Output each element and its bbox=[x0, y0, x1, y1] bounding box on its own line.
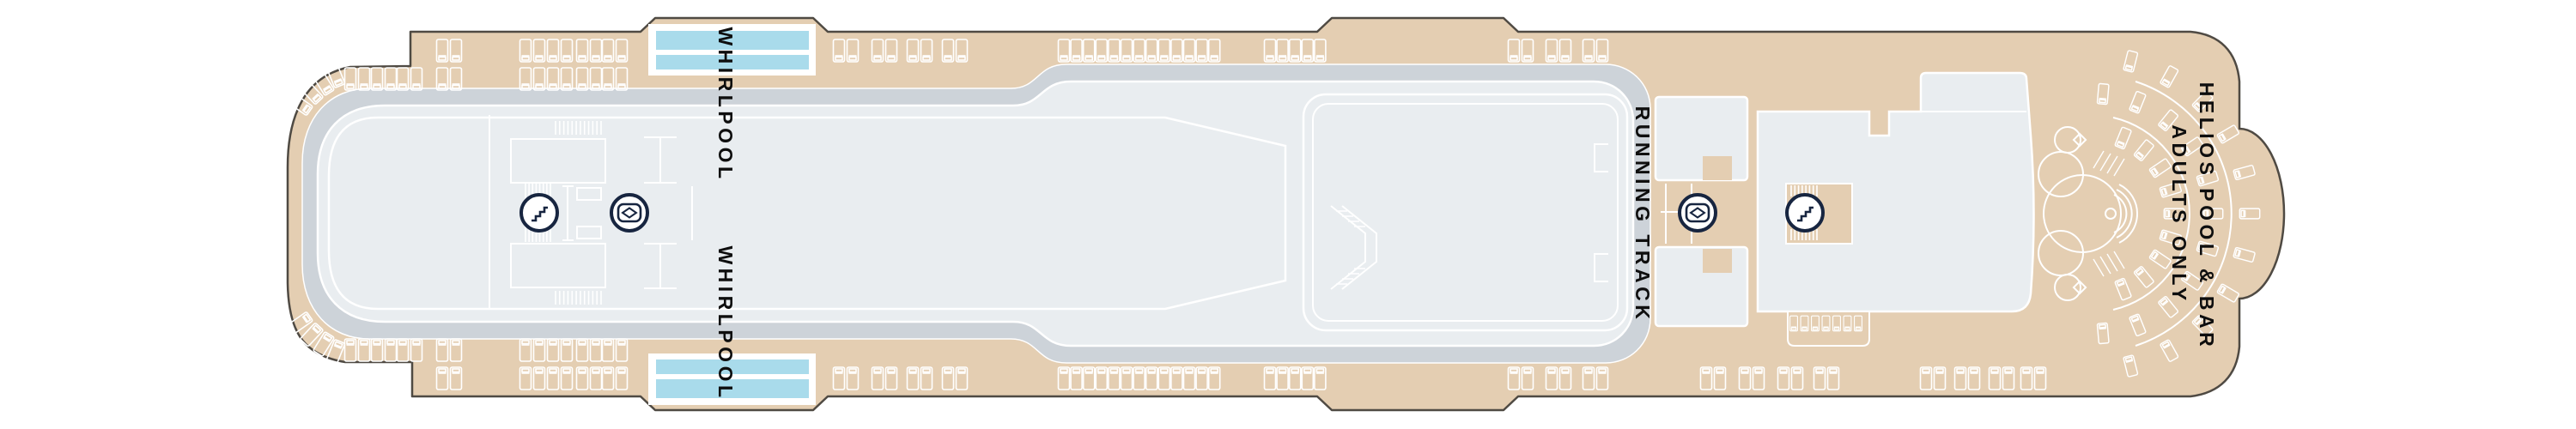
room-lower bbox=[1656, 247, 1747, 326]
ship-deck-plan: WHIRLPOOL WHIRLPOOL RUNNING TRACK HELIOS… bbox=[0, 0, 2576, 429]
inner-deck bbox=[318, 82, 1633, 346]
stairs-icon bbox=[521, 195, 557, 231]
adults-only-label: ADULTS ONLY bbox=[2168, 124, 2190, 304]
helios-pool-bar-label: HELIOS POOL & BAR bbox=[2196, 82, 2218, 351]
deck-plan-page: WHIRLPOOL WHIRLPOOL RUNNING TRACK HELIOS… bbox=[0, 0, 2576, 429]
elevator-icon bbox=[611, 195, 647, 231]
stairs-icon bbox=[1787, 195, 1823, 231]
whirlpool-bottom-label: WHIRLPOOL bbox=[714, 245, 737, 401]
whirlpool-top-label: WHIRLPOOL bbox=[714, 27, 737, 182]
room-upper bbox=[1656, 97, 1747, 180]
elevator-icon bbox=[1680, 195, 1716, 231]
running-track-label: RUNNING TRACK bbox=[1631, 106, 1654, 323]
